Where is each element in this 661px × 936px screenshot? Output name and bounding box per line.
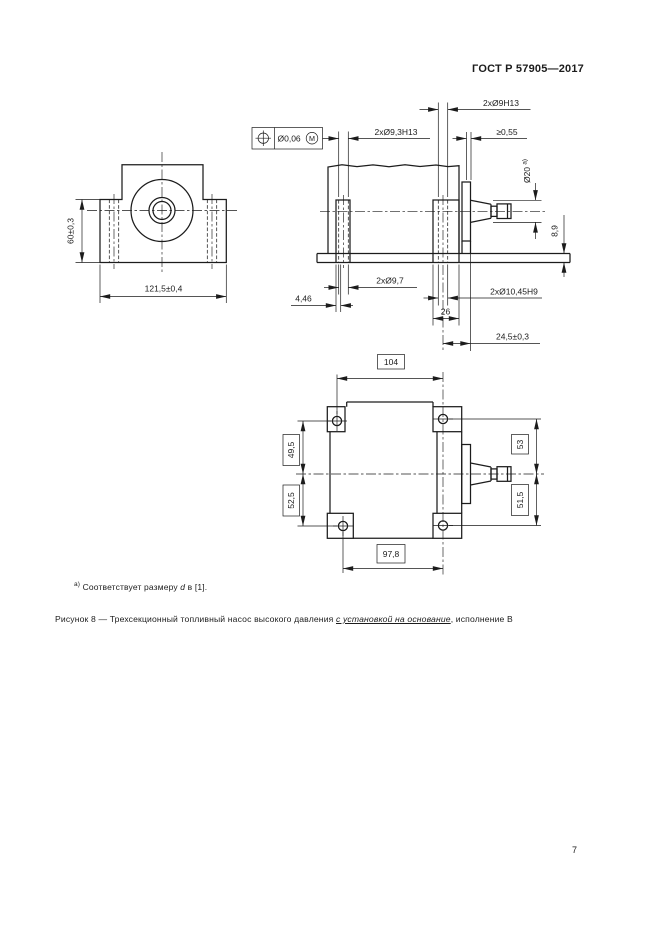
mounting-ears: [327, 407, 461, 539]
shaft-diameter-value: Ø20: [522, 167, 532, 183]
footnote-text: Соответствует размеру: [80, 582, 180, 592]
dim-shaft-to-hole: 24,5±0,3: [496, 332, 529, 342]
dim-holes-left-top: 2xØ9,3H13: [375, 127, 418, 137]
dim-upper-left: 49,5: [286, 441, 296, 458]
dim-lower-right: 51,5: [515, 491, 525, 508]
mmc-letter: M: [309, 134, 315, 143]
caption-text-end: , исполнение В: [451, 614, 513, 624]
front-hidden-hole-lines: [109, 200, 216, 263]
dim-edge-offset: 4,46: [295, 294, 312, 304]
dim-hole-span-bottom: 97,8: [383, 549, 400, 559]
shaft-diameter-note: а): [522, 159, 529, 165]
dim-text-width: 121,5±0,4: [145, 284, 183, 294]
dim-upper-right: 53: [515, 440, 525, 450]
page-number: 7: [572, 845, 577, 855]
top-centerlines: [296, 372, 544, 577]
mmc-modifier-icon: M: [306, 132, 318, 144]
document-page: ГОСТ Р 57905—2017 60±0,3 121,5±0,4: [0, 0, 661, 936]
gdt-frame: Ø0,06 M: [252, 128, 323, 150]
gdt-value-text: Ø0,06: [278, 134, 301, 144]
dim-lower-left: 52,5: [286, 492, 296, 509]
reference-dimension-boxes: [283, 355, 529, 564]
footnote: а) Соответствует размеру d в [1].: [74, 581, 207, 592]
caption-underlined-text: с установкой на основание: [336, 614, 451, 624]
dim-shaft-diameter: Ø20 а): [522, 159, 533, 183]
figure-caption: Рисунок 8 — Трехсекционный топливный нас…: [55, 614, 615, 624]
dim-plate-thickness: 8,9: [550, 225, 560, 237]
dim-foot-width: 26: [441, 307, 451, 317]
front-view: 60±0,3 121,5±0,4: [66, 152, 238, 303]
dim-min-gap: ≥0,55: [496, 127, 517, 137]
top-view: 104 97,8 49,5 52,5 53 51,5: [283, 355, 544, 578]
flange-bracket: [462, 241, 471, 254]
pump-body-outline: [328, 165, 459, 254]
dim-text-height: 60±0,3: [66, 218, 76, 244]
dim-hole-span-top: 104: [384, 357, 398, 367]
footnote-text-end: в [1].: [185, 582, 207, 592]
side-view: Ø0,06 M: [252, 98, 570, 351]
side-extension-lines: [336, 103, 542, 352]
dim-holes-left-bottom: 2xØ9,7: [376, 276, 404, 286]
caption-text: Рисунок 8 — Трехсекционный топливный нас…: [55, 614, 336, 624]
position-tolerance-icon: [256, 131, 272, 147]
dim-holes-right-bottom: 2xØ10,45H9: [490, 287, 538, 297]
technical-drawing: 60±0,3 121,5±0,4: [0, 0, 661, 936]
side-dimension-lines: [291, 110, 564, 344]
dim-holes-right-top: 2xØ9H13: [483, 98, 519, 108]
base-plate-lines: [317, 254, 570, 263]
